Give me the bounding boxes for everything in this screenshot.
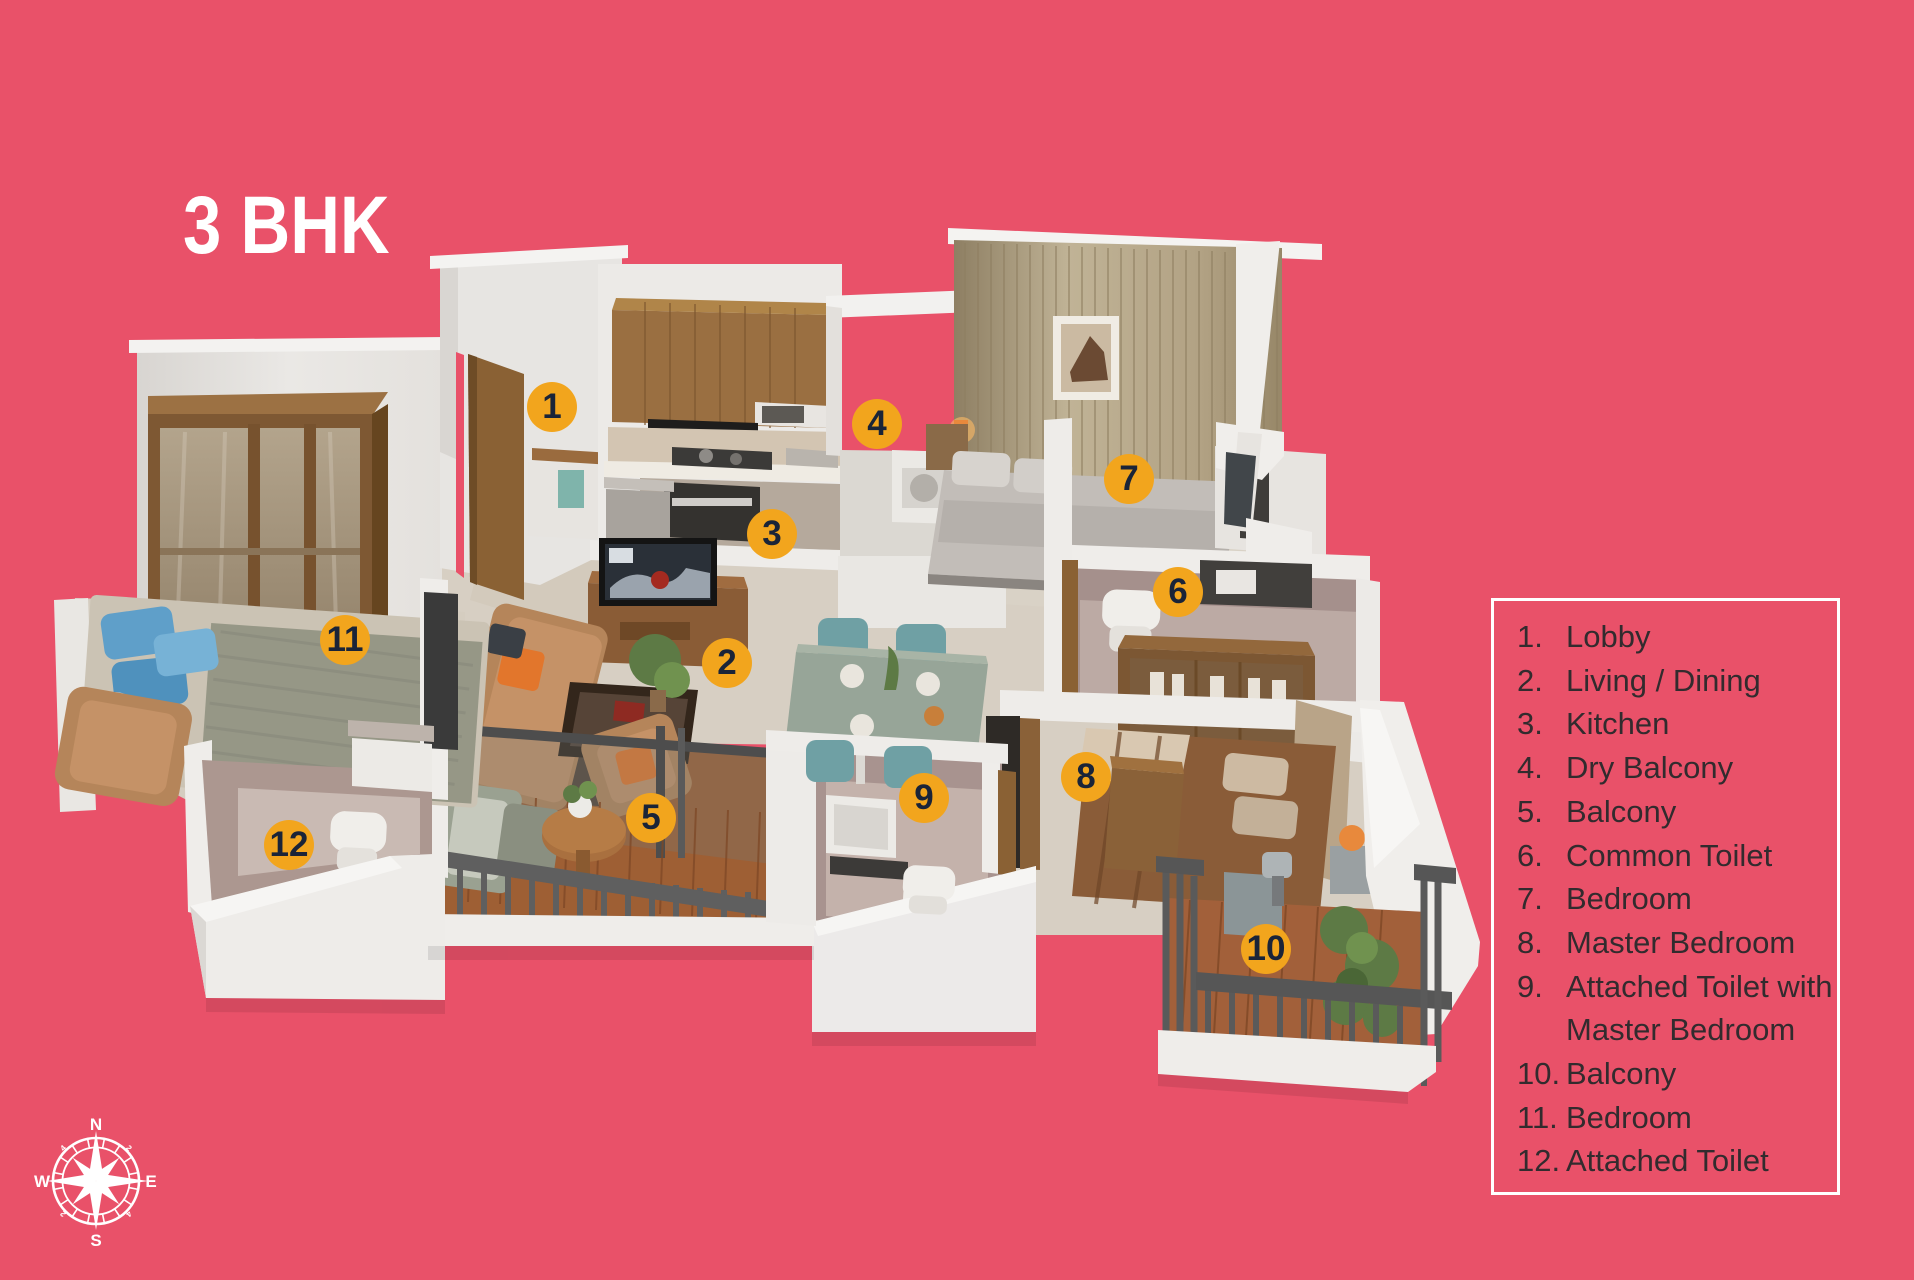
svg-text:S: S	[90, 1231, 101, 1250]
svg-text:E: E	[145, 1172, 156, 1191]
svg-text:W: W	[34, 1172, 51, 1191]
svg-text:N: N	[90, 1115, 102, 1134]
